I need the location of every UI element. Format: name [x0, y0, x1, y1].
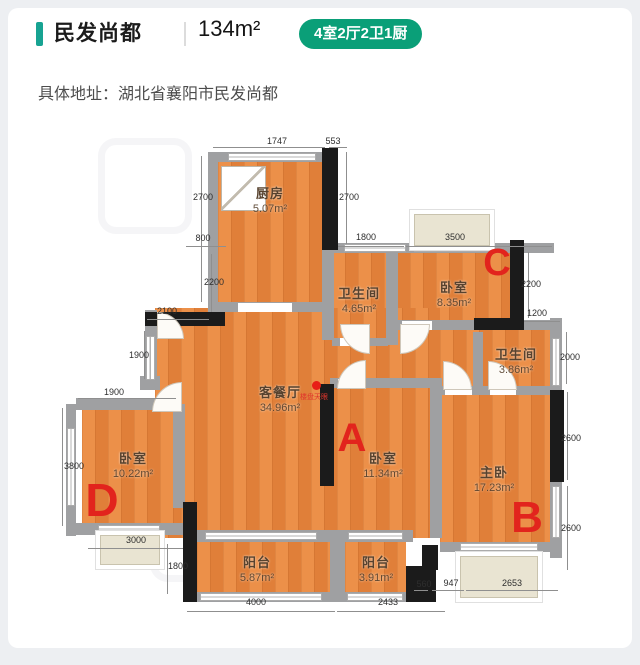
room-label-阳台: 阳台5.87m²: [209, 552, 305, 584]
room-area: 5.07m²: [222, 203, 318, 215]
room-marker-A: A: [338, 418, 367, 458]
room-area: 4.65m²: [311, 303, 407, 315]
door-opening: [238, 303, 292, 312]
window: [228, 153, 316, 161]
dimension-label: 1800: [168, 561, 188, 571]
room-area: 5.87m²: [209, 572, 305, 584]
window: [552, 486, 560, 538]
room-marker-C: C: [483, 244, 510, 282]
dimension-label: 2700: [193, 192, 213, 202]
room-area: 3.91m²: [328, 572, 424, 584]
wall: [208, 152, 218, 312]
dimension-label: 1900: [129, 350, 149, 360]
dimension-label: 2653: [502, 578, 522, 588]
room-name: 卫生间: [311, 283, 407, 302]
room-label-卫生间: 卫生间4.65m²: [311, 283, 407, 315]
wall-black: [183, 502, 197, 602]
window: [348, 532, 403, 540]
dimension-label: 1800: [356, 232, 376, 242]
dimension-line: [78, 398, 176, 399]
dimension-line: [62, 408, 63, 526]
dimension-label: 2700: [339, 192, 359, 202]
dimension-line: [406, 246, 552, 247]
dimension-label: 2433: [378, 597, 398, 607]
dimension-line: [186, 246, 226, 247]
room-area: 34.96m²: [232, 402, 328, 414]
room-marker-B: B: [511, 496, 543, 540]
room-label-阳台: 阳台3.91m²: [328, 552, 424, 584]
dimension-label: 947: [443, 578, 458, 588]
dimension-label: 560: [416, 579, 431, 589]
dimension-label: 800: [195, 233, 210, 243]
room-area: 3.86m²: [468, 364, 564, 376]
dimension-line: [524, 321, 560, 322]
dimension-line: [432, 590, 464, 591]
dimension-label: 1200: [527, 308, 547, 318]
dimension-line: [147, 319, 209, 320]
dimension-label: 3500: [445, 232, 465, 242]
room-area: 8.35m²: [406, 297, 502, 309]
room-area: 11.34m²: [335, 468, 431, 480]
map-point-dot: [312, 381, 321, 390]
dimension-label: 2100: [157, 306, 177, 316]
dimension-label: 2000: [560, 352, 580, 362]
window: [460, 543, 538, 551]
dimension-label: 2600: [561, 433, 581, 443]
room-name: 卫生间: [468, 344, 564, 363]
room-name: 阳台: [328, 552, 424, 571]
dimension-line: [466, 590, 558, 591]
screen: 民发尚都 134m² 4室2厅2卫1厨 具体地址：湖北省襄阳市民发尚都 厨房5.…: [0, 0, 640, 665]
room-label-厨房: 厨房5.07m²: [222, 183, 318, 215]
window: [205, 532, 317, 540]
room-label-主卧: 主卧17.23m²: [446, 462, 542, 494]
dimension-label: 1747: [267, 136, 287, 146]
dimension-label: 2200: [521, 279, 541, 289]
dimension-line: [414, 590, 428, 591]
wall-black: [322, 148, 338, 250]
dimension-label: 553: [325, 136, 340, 146]
dimension-line: [201, 156, 202, 302]
room-label-卫生间: 卫生间3.86m²: [468, 344, 564, 376]
plan-stage: 厨房5.07m²卫生间4.65m²卧室8.35m²卫生间3.86m²客餐厅34.…: [0, 0, 640, 665]
dimension-line: [329, 147, 347, 148]
dimension-line: [338, 246, 404, 247]
dimension-label: 1900: [104, 387, 124, 397]
watermark-text: 楼盘天眼: [300, 392, 328, 402]
dimension-label: 2600: [561, 523, 581, 533]
wall-black: [474, 318, 514, 330]
dimension-label: 3000: [126, 535, 146, 545]
room-name: 厨房: [222, 183, 318, 202]
dimension-label: 2200: [204, 277, 224, 287]
dimension-label: 4000: [246, 597, 266, 607]
dimension-line: [88, 548, 183, 549]
window: [98, 525, 160, 533]
dimension-line: [187, 611, 335, 612]
room-name: 阳台: [209, 552, 305, 571]
room-name: 主卧: [446, 462, 542, 481]
dimension-line: [337, 611, 445, 612]
dimension-label: 3800: [64, 461, 84, 471]
room-name: 卧室: [85, 448, 181, 467]
wall: [430, 388, 442, 538]
bay-window: [460, 556, 538, 598]
room-marker-D: D: [85, 477, 118, 523]
dimension-line: [213, 147, 325, 148]
watermark-logo-ghost: [98, 138, 192, 234]
